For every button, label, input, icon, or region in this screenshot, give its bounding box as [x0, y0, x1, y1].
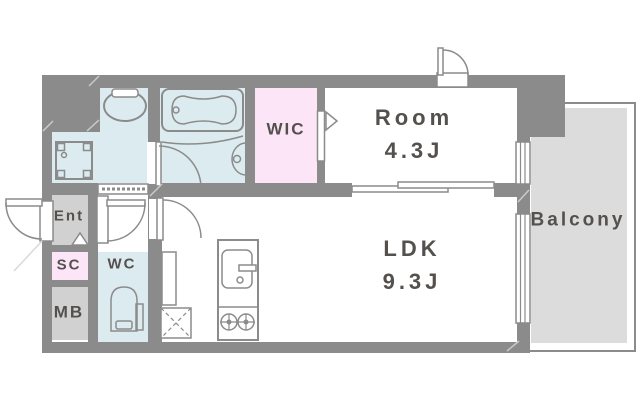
wall-ent-sc — [42, 245, 88, 252]
wall-top — [42, 75, 520, 88]
floor-plan: Room 4.3J LDK 9.3J Balcony WIC Ent SC WC… — [0, 0, 640, 400]
shoe-closet-label: SC — [57, 258, 82, 273]
ldk-size-label: 9.3J — [383, 271, 442, 293]
wall-column-top-left — [42, 75, 100, 132]
wall-mid-right — [494, 183, 518, 197]
wall-mid-center — [148, 183, 352, 197]
ldk-label: LDK — [383, 238, 440, 260]
bathroom-floor — [160, 88, 245, 183]
wall-ent-hall — [88, 195, 98, 342]
wall-mid-left — [42, 183, 98, 195]
wall-right-mid — [517, 182, 529, 217]
wall-sc-mb — [42, 280, 88, 287]
corner-mark — [14, 241, 42, 271]
wall-right-upper — [517, 88, 529, 145]
wall-wic-room — [317, 88, 325, 183]
wc-label: WC — [108, 257, 137, 272]
wall-bottom — [42, 342, 530, 353]
washroom-folding-door — [98, 184, 148, 194]
entrance-label: Ent — [54, 209, 84, 224]
room-label: Room — [375, 107, 453, 129]
wall-hall-ldk — [148, 195, 162, 342]
hall-floor — [98, 197, 150, 252]
ldk-floor — [162, 197, 517, 342]
wall-wash-bath — [148, 88, 160, 145]
bedroom-floor — [325, 88, 517, 183]
balcony-label: Balcony — [531, 211, 626, 230]
wall-bath-wic — [245, 88, 255, 183]
room-size-label: 4.3J — [385, 140, 444, 162]
room-sliding-door — [352, 182, 494, 192]
wall-right-lower — [517, 321, 529, 345]
wic-label: WIC — [266, 121, 305, 138]
meter-box-label: MB — [54, 304, 84, 321]
